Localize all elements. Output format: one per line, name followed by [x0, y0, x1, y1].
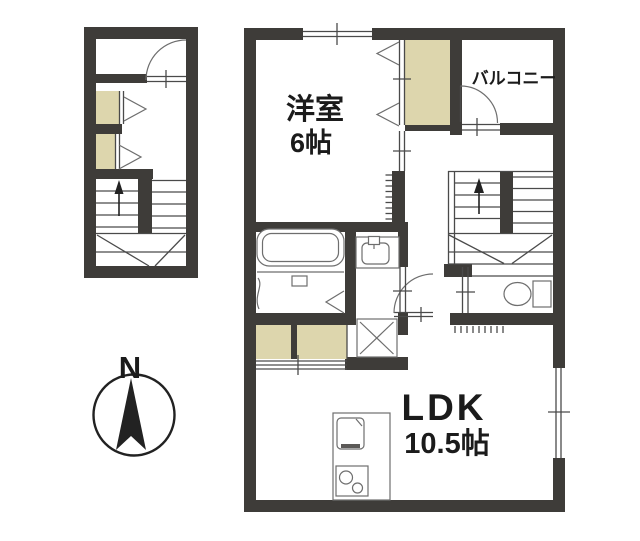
top-window [303, 23, 372, 45]
folding-door-icon [377, 42, 399, 65]
bedroom-closet [377, 40, 450, 171]
western-room-size: 6帖 [290, 128, 332, 158]
folding-door-icon [377, 103, 399, 126]
half-wall-hatch [455, 326, 503, 333]
compass: N [94, 350, 175, 456]
floor-plan-canvas: 洋室 6帖 [0, 0, 640, 541]
stair-up-arrow-icon [115, 180, 124, 216]
annex-plan [84, 27, 198, 278]
main-plan: 洋室 6帖 [244, 23, 570, 512]
balcony-door [461, 86, 498, 123]
western-room: 洋室 6帖 [286, 92, 392, 219]
folding-door-icon [124, 97, 146, 121]
kitchen-sink [337, 418, 364, 449]
bathroom [257, 229, 344, 313]
ldk-size: 10.5帖 [404, 427, 489, 460]
ldk-label: LDK [401, 387, 486, 428]
bath-door-curve [257, 278, 260, 309]
folding-door-icon [119, 145, 141, 169]
kitchen-counter [333, 413, 390, 500]
ldk-closet [256, 325, 347, 375]
compass-north-arrow-icon [116, 378, 146, 450]
western-room-label: 洋室 [286, 92, 344, 126]
annex-closet-upper [96, 91, 146, 124]
compass-north-label: N [119, 350, 141, 385]
right-window [548, 368, 570, 458]
gas-stove [336, 466, 368, 496]
annex-closet-lower [96, 134, 141, 169]
bathtub [257, 229, 344, 286]
toilet-fixture [504, 281, 551, 307]
washbasin [356, 237, 399, 269]
ldk: LDK 10.5帖 [333, 387, 490, 500]
balcony-label: バルコニー [472, 69, 557, 88]
room-side-hatched-wall [386, 175, 393, 219]
entrance-door [146, 40, 186, 88]
washing-machine-pan [357, 319, 397, 357]
folding-door-icon [326, 291, 344, 313]
